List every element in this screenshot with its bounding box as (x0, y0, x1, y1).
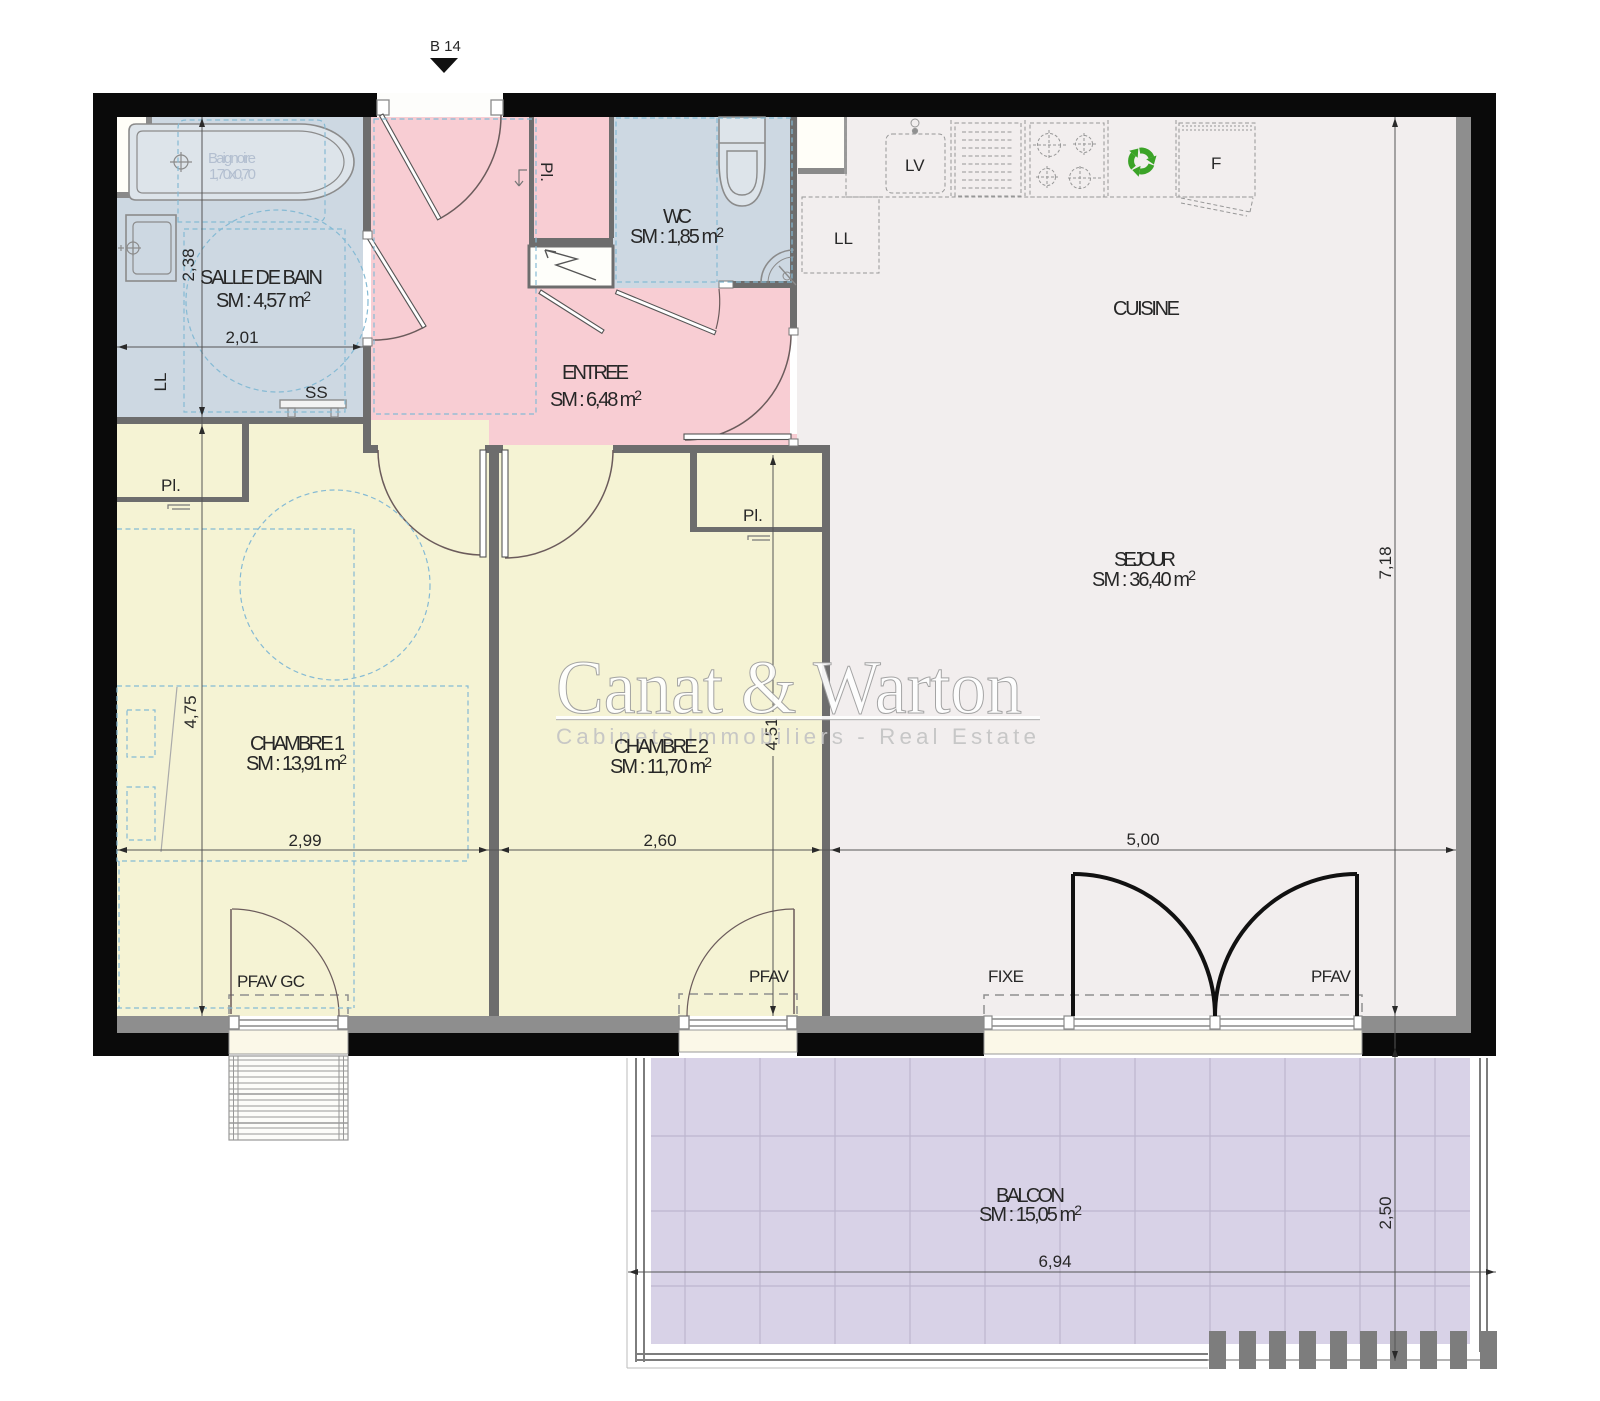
svg-text:B 14: B 14 (430, 38, 461, 55)
svg-text:2,50: 2,50 (1376, 1196, 1395, 1229)
svg-text:SS: SS (305, 383, 328, 402)
svg-text:CHAMBRE 2: CHAMBRE 2 (614, 736, 709, 758)
svg-text:4,75: 4,75 (181, 695, 200, 728)
svg-text:SM : 6,48 m2: SM : 6,48 m2 (550, 387, 642, 411)
svg-text:Pl.: Pl. (743, 506, 763, 525)
svg-text:F: F (1211, 154, 1221, 173)
svg-text:LL: LL (151, 373, 170, 392)
svg-text:SEJOUR: SEJOUR (1114, 549, 1176, 571)
svg-text:PFAV: PFAV (749, 967, 790, 986)
svg-text:LV: LV (905, 156, 925, 175)
svg-text:SM : 11,70 m2: SM : 11,70 m2 (610, 754, 712, 778)
svg-text:7,18: 7,18 (1376, 546, 1395, 579)
svg-text:2,01: 2,01 (225, 328, 258, 347)
svg-text:PFAV GC: PFAV GC (237, 972, 305, 991)
svg-text:SM : 13,91 m2: SM : 13,91 m2 (246, 751, 347, 775)
svg-text:CHAMBRE 1: CHAMBRE 1 (250, 733, 345, 755)
svg-text:SM : 15,05 m2: SM : 15,05 m2 (979, 1202, 1082, 1226)
svg-text:LL: LL (834, 229, 853, 248)
svg-text:SM : 1,85 m2: SM : 1,85 m2 (630, 224, 724, 248)
svg-text:Pl.: Pl. (161, 476, 181, 495)
svg-text:CUISINE: CUISINE (1113, 298, 1180, 320)
svg-text:PFAV: PFAV (1311, 967, 1352, 986)
svg-text:5,00: 5,00 (1126, 830, 1159, 849)
svg-text:2,99: 2,99 (288, 831, 321, 850)
svg-text:WC: WC (663, 206, 692, 228)
svg-text:Baignoire: Baignoire (208, 150, 256, 167)
svg-text:SALLE DE BAIN: SALLE DE BAIN (200, 267, 323, 289)
svg-text:SM : 4,57 m2: SM : 4,57 m2 (216, 288, 311, 312)
svg-text:2,38: 2,38 (179, 248, 198, 281)
svg-text:Pl.: Pl. (537, 162, 556, 182)
svg-text:FIXE: FIXE (988, 967, 1024, 986)
svg-text:SM : 36,40 m2: SM : 36,40 m2 (1092, 567, 1196, 591)
svg-text:2,60: 2,60 (643, 831, 676, 850)
svg-text:ENTREE: ENTREE (562, 362, 629, 384)
svg-text:6,94: 6,94 (1038, 1252, 1071, 1271)
svg-text:1,70x0,70: 1,70x0,70 (209, 166, 256, 183)
